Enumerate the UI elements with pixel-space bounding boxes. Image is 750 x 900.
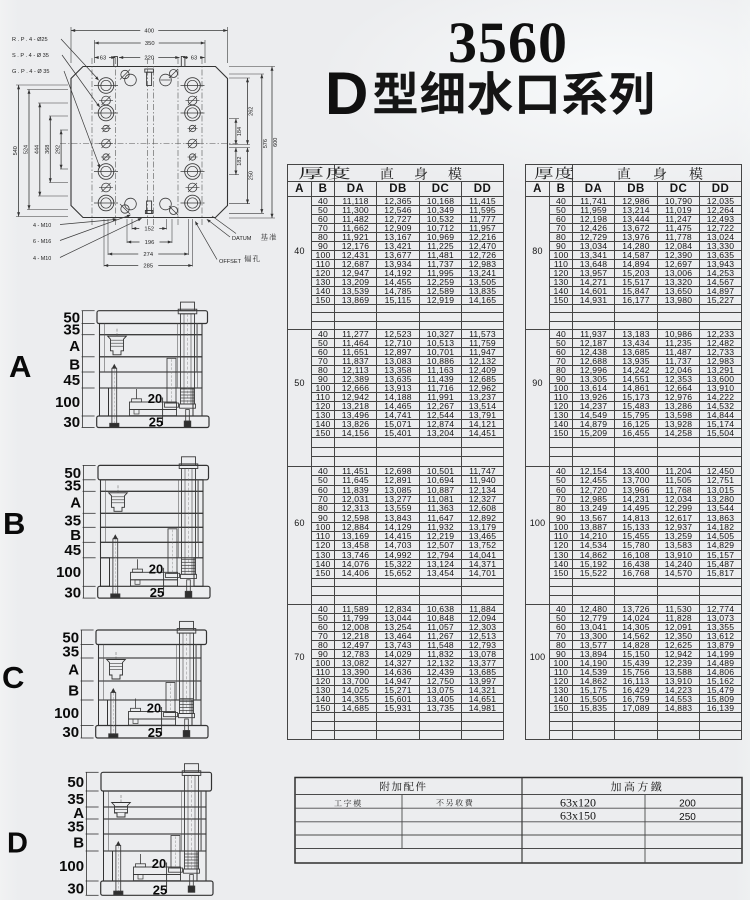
svg-text:274: 274: [143, 252, 153, 258]
svg-text:A: A: [9, 349, 31, 384]
svg-text:30: 30: [63, 414, 80, 431]
svg-text:25: 25: [150, 585, 164, 600]
svg-text:100: 100: [56, 564, 81, 581]
svg-text:25: 25: [149, 415, 163, 430]
svg-text:100: 100: [59, 858, 84, 875]
svg-text:182: 182: [237, 157, 243, 166]
svg-text:576: 576: [263, 139, 269, 148]
svg-text:35: 35: [64, 478, 81, 495]
svg-text:35: 35: [62, 644, 79, 661]
svg-text:C: C: [2, 660, 24, 695]
svg-text:368: 368: [45, 145, 51, 154]
svg-text:285: 285: [143, 264, 153, 270]
svg-text:25: 25: [153, 882, 167, 897]
svg-text:100: 100: [55, 394, 80, 411]
svg-text:35: 35: [67, 819, 84, 836]
svg-text:30: 30: [62, 724, 79, 741]
svg-text:292: 292: [56, 145, 62, 154]
svg-text:220: 220: [144, 56, 154, 62]
svg-text:4 - M10: 4 - M10: [33, 223, 51, 229]
svg-text:B: B: [68, 683, 79, 700]
svg-text:20: 20: [147, 701, 161, 716]
svg-text:600: 600: [273, 138, 279, 147]
svg-text:63x150: 63x150: [560, 809, 596, 823]
svg-text:A: A: [68, 662, 79, 679]
svg-text:35: 35: [63, 321, 80, 338]
svg-text:63: 63: [100, 56, 106, 62]
svg-text:DATUM: DATUM: [232, 236, 252, 242]
svg-text:250: 250: [249, 171, 255, 180]
svg-text:152: 152: [144, 227, 154, 233]
svg-text:200: 200: [679, 799, 696, 810]
svg-text:100: 100: [54, 705, 79, 722]
svg-text:250: 250: [679, 812, 696, 823]
svg-text:A: A: [69, 338, 80, 355]
svg-text:B: B: [69, 357, 80, 374]
svg-text:B: B: [3, 506, 25, 541]
svg-text:S . P . 4 - Ø 35: S . P . 4 - Ø 35: [12, 53, 49, 59]
svg-text:63: 63: [191, 56, 197, 62]
svg-text:30: 30: [67, 880, 84, 897]
svg-text:B: B: [73, 835, 84, 852]
svg-text:4 - M10: 4 - M10: [33, 256, 51, 262]
svg-text:R . P . 4 - Ø25: R . P . 4 - Ø25: [12, 37, 48, 43]
svg-text:400: 400: [144, 29, 154, 35]
svg-text:20: 20: [152, 856, 166, 871]
svg-text:45: 45: [63, 372, 80, 389]
svg-text:350: 350: [145, 41, 155, 47]
svg-text:184: 184: [237, 127, 243, 136]
svg-text:63x120: 63x120: [560, 795, 596, 809]
svg-text:196: 196: [145, 240, 155, 246]
svg-text:25: 25: [148, 725, 162, 740]
svg-text:30: 30: [64, 584, 81, 601]
svg-text:524: 524: [24, 145, 30, 154]
svg-text:45: 45: [64, 542, 81, 559]
svg-text:20: 20: [148, 391, 162, 406]
svg-text:OFFSET: OFFSET: [219, 259, 242, 265]
svg-text:6 - M16: 6 - M16: [33, 239, 51, 245]
svg-text:D: D: [7, 828, 28, 860]
svg-text:20: 20: [149, 561, 163, 576]
svg-text:A: A: [70, 495, 81, 512]
svg-text:444: 444: [34, 145, 40, 154]
svg-text:50: 50: [67, 774, 84, 791]
svg-text:262: 262: [249, 107, 255, 116]
svg-text:G . P . 4 - Ø 35: G . P . 4 - Ø 35: [12, 69, 50, 75]
svg-text:540: 540: [13, 146, 19, 155]
